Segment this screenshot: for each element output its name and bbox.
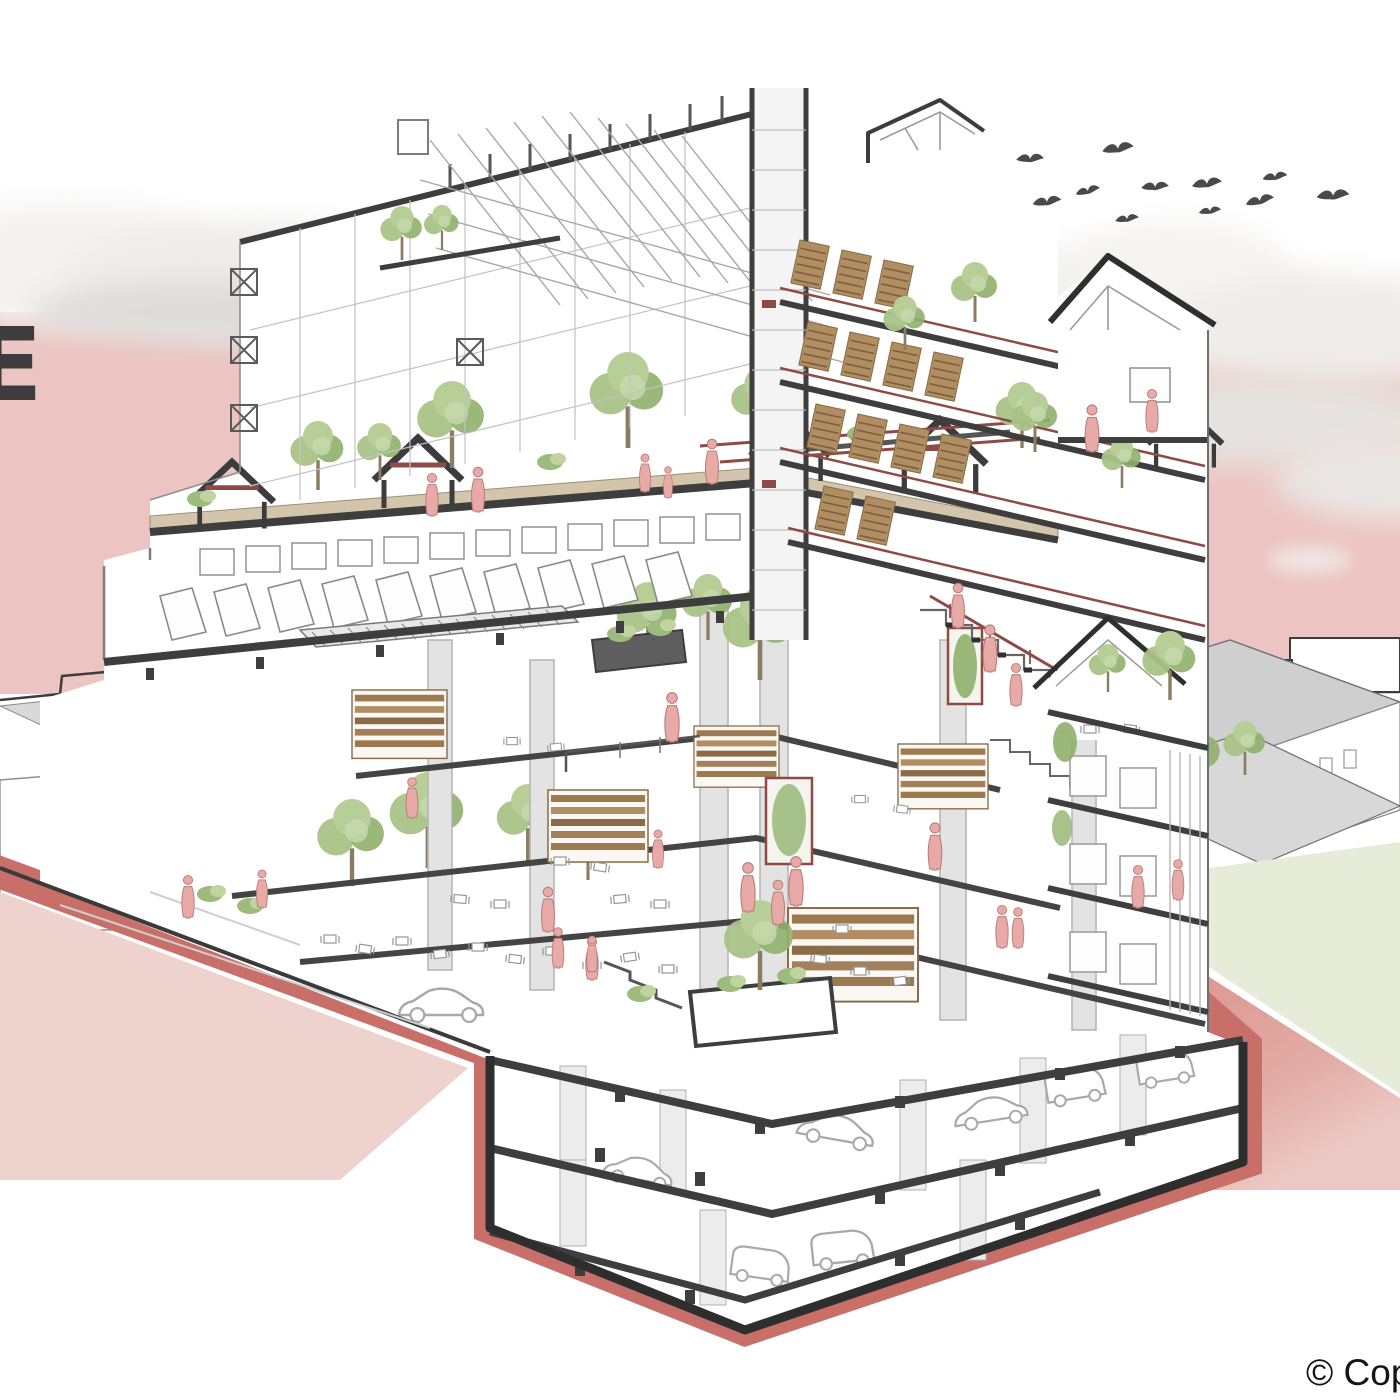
core-shaft — [752, 88, 806, 640]
cropped-title-letter: E — [0, 315, 43, 417]
illustration-canvas: E © Copyri — [0, 0, 1400, 1400]
axonometric-section-drawing — [0, 0, 1400, 1400]
copyright-text: © Copyri — [1306, 1352, 1400, 1394]
cloud-small-puff — [1268, 546, 1352, 574]
